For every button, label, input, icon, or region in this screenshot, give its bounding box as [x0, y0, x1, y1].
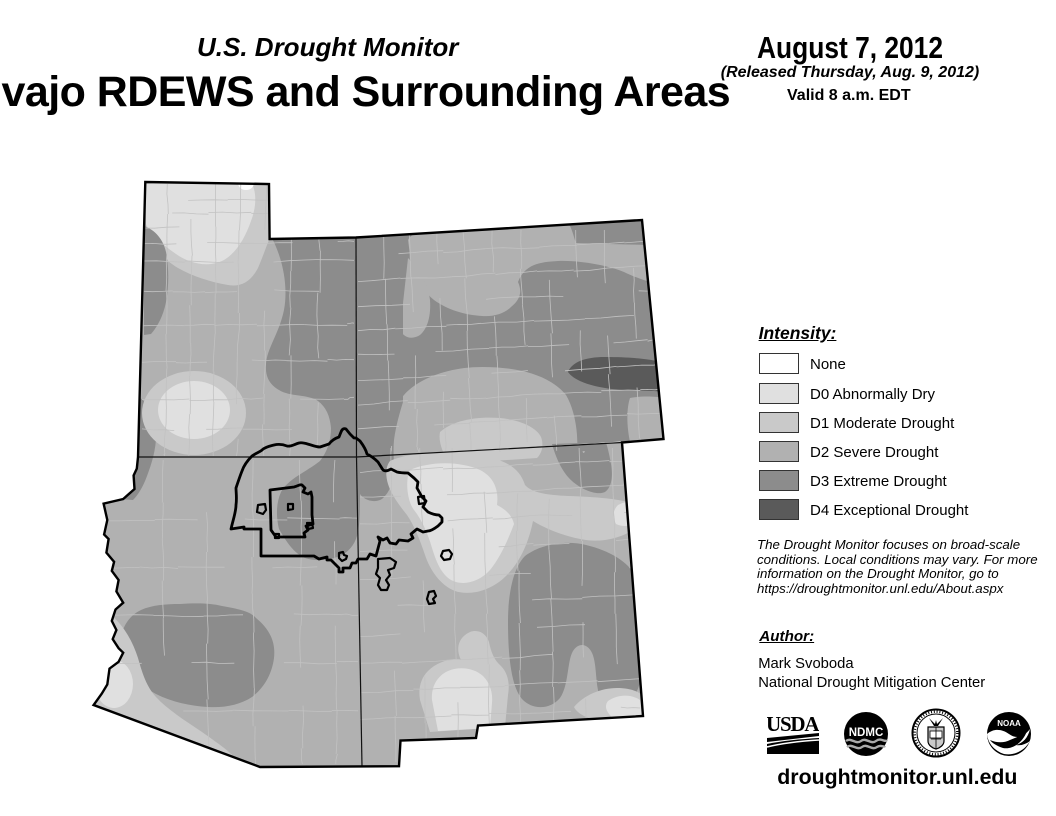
svg-text:NDMC: NDMC — [849, 727, 884, 739]
svg-text:USDA: USDA — [767, 714, 819, 736]
svg-text:NOAA: NOAA — [997, 719, 1021, 728]
